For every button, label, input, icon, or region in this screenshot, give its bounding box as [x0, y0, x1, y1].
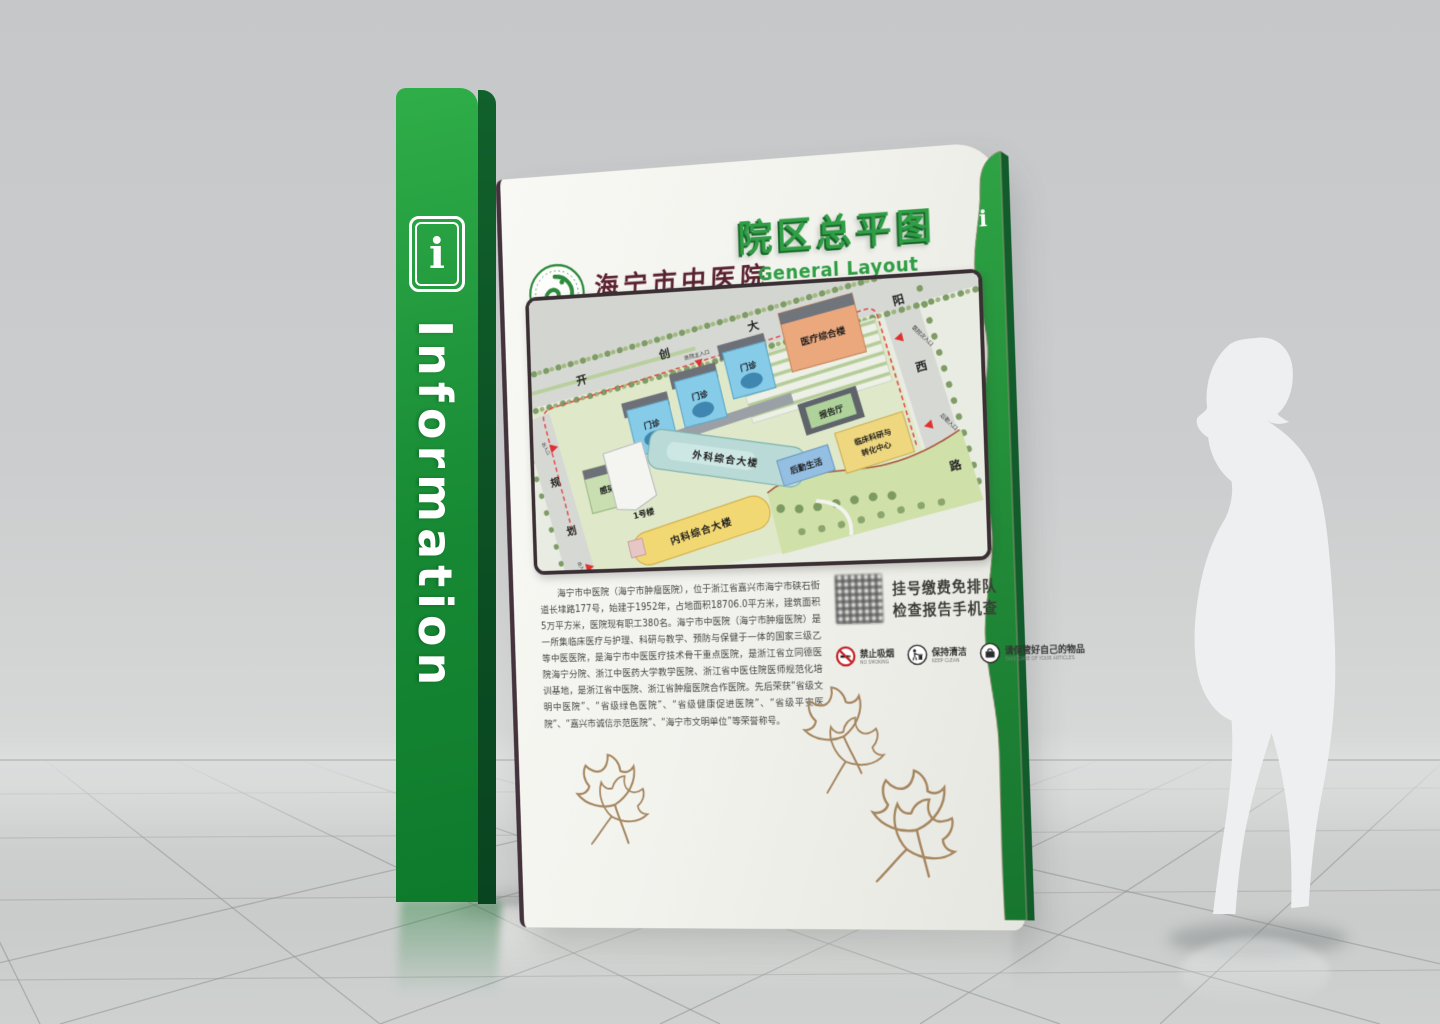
- qr-notice-line2: 检查报告手机查: [892, 598, 998, 623]
- rule-no-smoking: 禁止吸烟 NO SMOKING: [835, 644, 895, 667]
- sign-board: i 海宁市中医院 HAINING TRADITIONAL CHINESE MED…: [496, 141, 1025, 930]
- pillar-side-face: [478, 90, 496, 904]
- scene: i 海宁市中医院 HAINING TRADITIONAL CHINESE MED…: [0, 0, 1440, 1024]
- site-map-panel: 感染楼 门诊 门诊: [525, 268, 992, 575]
- leaf-motif-middle: [792, 682, 895, 810]
- qr-notice-line1: 挂号缴费免排队: [892, 576, 998, 602]
- no-smoking-icon: [835, 645, 857, 667]
- qr-code: [834, 573, 883, 624]
- rule-take-care: 请保管好自己的物品 TAKE CARE OF YOUR ARTICLES: [979, 640, 1085, 665]
- belongings-icon: [979, 642, 1001, 664]
- leaf-motif-right: [850, 763, 972, 910]
- info-icon: i: [409, 216, 465, 292]
- person-silhouette: [1140, 328, 1370, 953]
- page-title: 院区总平图: [737, 196, 937, 263]
- ginkgo-leaf-decorations: [517, 682, 1025, 931]
- keep-clean-icon: [906, 644, 928, 666]
- information-label: Information: [408, 320, 462, 880]
- leaf-motif-left: [568, 746, 663, 863]
- pillar-front-face: i Information: [396, 88, 478, 902]
- pillar-reflection: [395, 900, 501, 1012]
- rule-keep-clean: 保持清洁 KEEP CLEAN: [906, 643, 967, 666]
- side-tab-info-icon: i: [963, 205, 1003, 234]
- site-map: 感染楼 门诊 门诊: [529, 273, 988, 572]
- info-pillar: i Information: [396, 88, 496, 902]
